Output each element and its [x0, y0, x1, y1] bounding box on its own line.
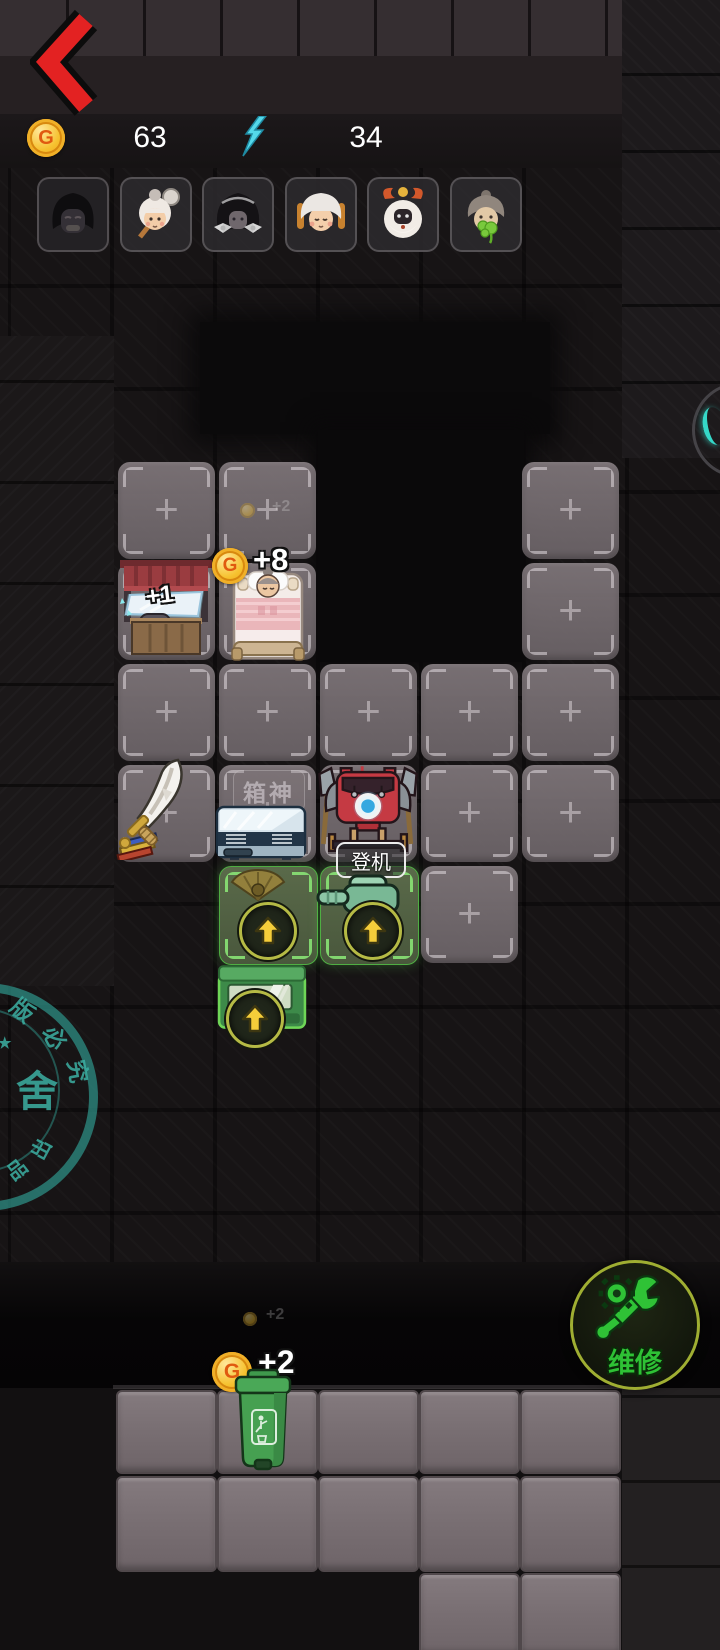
upgrade-arrow-crate[interactable] [226, 990, 284, 1048]
desk-bonus-label: +1 [144, 580, 175, 611]
watermark-center-char: 舍 [16, 1058, 58, 1119]
floor-panel [419, 1476, 520, 1572]
bed-coin-icon: G [212, 548, 248, 584]
suitcase-item[interactable] [214, 804, 308, 862]
upgrade-arrow-badge[interactable] [239, 902, 297, 960]
ghost-bonus-label: +2 [272, 498, 290, 516]
top-wall-shadow [0, 114, 622, 168]
up-arrow-icon [355, 913, 391, 949]
avatar-grandma-club-icon [127, 185, 185, 245]
board-slot[interactable] [522, 664, 619, 761]
coin-icon: G [27, 119, 65, 157]
up-arrow-icon [250, 913, 286, 949]
board-slot[interactable] [421, 664, 518, 761]
energy-count: 34 [334, 121, 398, 155]
trash-ghost-coin-icon [243, 1312, 257, 1326]
avatar-grandma-slime-icon [457, 185, 515, 245]
floor-panel [116, 1390, 217, 1474]
right-wall-tiles [622, 0, 720, 458]
repair-button[interactable]: 维修 [570, 1260, 700, 1390]
avatar-slot-3[interactable] [202, 177, 274, 252]
bed-bonus-label: +8 [253, 542, 288, 578]
avatar-girl-bows-icon [209, 185, 267, 245]
up-arrow-icon [237, 1001, 273, 1037]
dark-pit [200, 322, 550, 434]
board-slot[interactable] [219, 664, 316, 761]
repair-button-label: 维修 [575, 1341, 695, 1380]
sword-item[interactable] [108, 754, 212, 860]
board-slot[interactable] [522, 462, 619, 559]
avatar-slot-5[interactable] [367, 177, 439, 252]
trash-can-item[interactable] [222, 1368, 304, 1472]
floor-panel [318, 1476, 419, 1572]
back-button[interactable] [30, 8, 100, 118]
floor-panel [318, 1390, 419, 1474]
energy-icon [240, 116, 268, 158]
badge-crest-item[interactable] [226, 868, 290, 902]
game-desk-item[interactable] [116, 560, 216, 660]
upgrade-arrow-gun[interactable] [344, 902, 402, 960]
floor-panel [520, 1390, 621, 1474]
watermark-star-icon: ★ [0, 1034, 11, 1052]
board-slot[interactable] [118, 664, 215, 761]
coin-count: 63 [118, 121, 182, 155]
floor-panel [520, 1573, 621, 1650]
avatar-lion-headdress-icon [374, 185, 432, 245]
embark-button-label: 登机 [351, 846, 391, 875]
avatar-slot-6[interactable] [450, 177, 522, 252]
floor-panel [217, 1476, 318, 1572]
robot-mech-item[interactable] [300, 766, 436, 854]
floor-panel [419, 1390, 520, 1474]
coin-letter: G [223, 555, 238, 577]
floor-panel [419, 1573, 520, 1650]
coin-letter: G [38, 127, 54, 150]
avatar-slot-2[interactable] [120, 177, 192, 252]
board-slot[interactable] [522, 765, 619, 862]
avatar-slot-1[interactable] [37, 177, 109, 252]
floor-panel [116, 1476, 217, 1572]
teal-arc-icon [699, 405, 720, 447]
repair-tools-icon [593, 1273, 677, 1339]
avatar-dark-grandpa-icon [44, 185, 102, 245]
ghost-coin-icon [240, 503, 255, 518]
game-screen: 版 必 究 ★ 舍 出 品 G 63 34 [0, 0, 720, 1650]
board-slot[interactable] [421, 866, 518, 963]
avatar-slot-4[interactable] [285, 177, 357, 252]
dark-pit [318, 430, 524, 662]
board-slot[interactable] [522, 563, 619, 660]
floor-edge-highlight [113, 1385, 622, 1389]
avatar-grandma-buns-icon [292, 185, 350, 245]
floor-right-dark [622, 1388, 720, 1650]
floor-panel [520, 1476, 621, 1572]
board-slot[interactable] [118, 462, 215, 559]
board-slot[interactable] [320, 664, 417, 761]
left-wall-tiles [0, 336, 114, 986]
trash-ghost-bonus-label: +2 [266, 1306, 284, 1324]
